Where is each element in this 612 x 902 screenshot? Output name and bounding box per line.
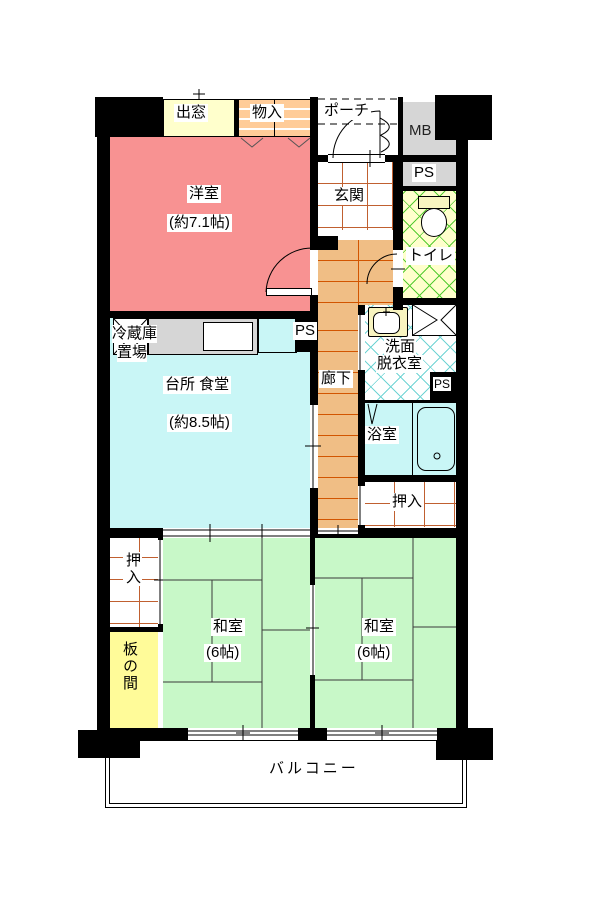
label-entrance: 玄関 bbox=[332, 187, 366, 205]
label-toilet: トイレ bbox=[406, 247, 455, 265]
label-kitchen: 台所 食堂 bbox=[163, 376, 231, 394]
label-closet-upper: 押入 bbox=[390, 493, 424, 511]
label-meter-box: MB bbox=[407, 122, 434, 140]
label-storage: 物入 bbox=[250, 104, 284, 122]
label-japanese-left: 和室 bbox=[211, 618, 245, 636]
label-western-size: (約7.1帖) bbox=[167, 214, 232, 232]
label-bathroom: 浴室 bbox=[365, 426, 399, 444]
label-kitchen-size: (約8.5帖) bbox=[167, 414, 232, 432]
label-closet-left: 押入 bbox=[123, 552, 142, 586]
label-corridor: 廊下 bbox=[319, 370, 353, 388]
label-pipe-space-top: PS bbox=[412, 164, 436, 182]
label-fridge-line1: 冷蔵庫 bbox=[112, 325, 157, 343]
label-fridge-line2: 置場 bbox=[117, 344, 147, 362]
label-balcony: バルコニー bbox=[267, 760, 361, 778]
floor-plan: 出窓 物入 ポーチ MB PS 玄関 トイレ 洋室 (約7.1帖) 冷蔵庫 置場… bbox=[0, 0, 612, 902]
label-pipe-space-right: PS bbox=[433, 377, 451, 391]
label-washroom-line1: 洗面 bbox=[384, 338, 416, 356]
label-western-room: 洋室 bbox=[187, 185, 221, 203]
label-washroom-line2: 脱衣室 bbox=[376, 355, 423, 373]
label-bay-window: 出窓 bbox=[174, 104, 208, 122]
label-japanese-right-size: (6帖) bbox=[355, 644, 392, 662]
label-japanese-right: 和室 bbox=[362, 618, 396, 636]
label-japanese-left-size: (6帖) bbox=[204, 644, 241, 662]
label-porch: ポーチ bbox=[322, 102, 371, 120]
label-itanoma: 板の間 bbox=[120, 641, 139, 692]
label-pipe-space-kitchen: PS bbox=[293, 322, 317, 340]
